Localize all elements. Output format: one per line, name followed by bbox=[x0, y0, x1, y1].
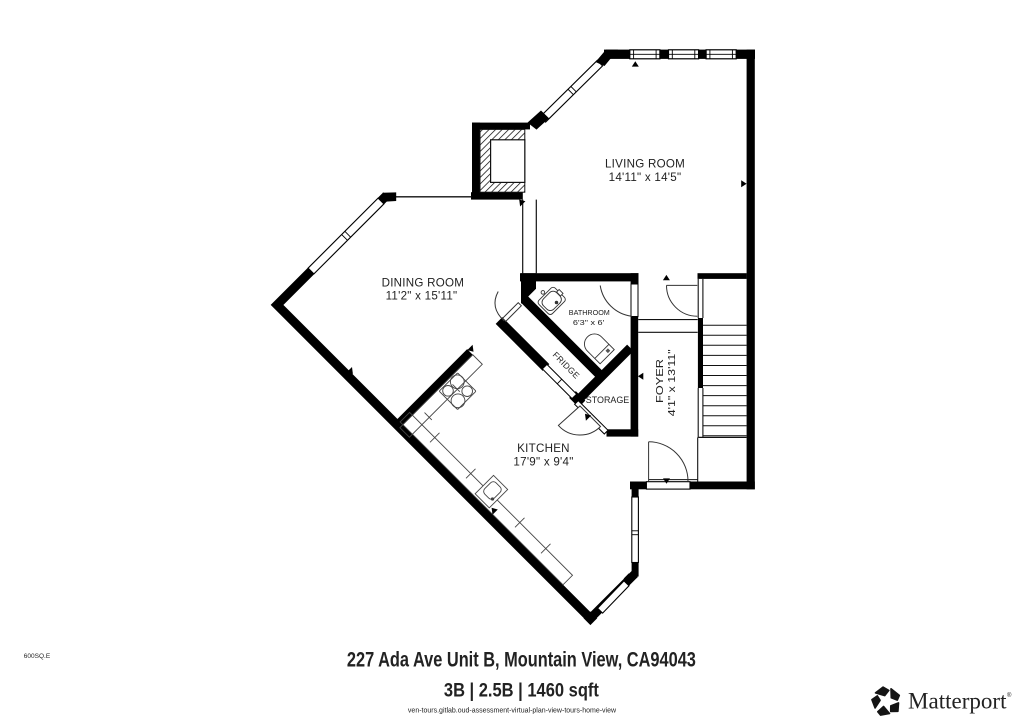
svg-text:KITCHEN: KITCHEN bbox=[517, 442, 570, 455]
svg-text:FOYER: FOYER bbox=[654, 358, 666, 403]
svg-text:LIVING ROOM: LIVING ROOM bbox=[605, 158, 685, 171]
svg-text:6'3" x 6': 6'3" x 6' bbox=[573, 318, 605, 327]
svg-text:Matterport: Matterport bbox=[908, 689, 1007, 714]
svg-text:®: ® bbox=[1007, 692, 1012, 699]
svg-text:11'2" x 15'11": 11'2" x 15'11" bbox=[386, 290, 458, 303]
svg-text:ven-tours.gitlab.oud-assessmen: ven-tours.gitlab.oud-assessment-virtual-… bbox=[408, 708, 617, 715]
svg-text:DINING ROOM: DINING ROOM bbox=[382, 276, 465, 289]
svg-text:BATHROOM: BATHROOM bbox=[569, 308, 610, 317]
svg-text:STORAGE: STORAGE bbox=[586, 395, 630, 406]
svg-text:14'11" x 14'5": 14'11" x 14'5" bbox=[609, 171, 682, 184]
svg-text:600SQ.E: 600SQ.E bbox=[24, 653, 51, 660]
svg-text:227 Ada Ave Unit B, Mountain V: 227 Ada Ave Unit B, Mountain View, CA940… bbox=[347, 649, 696, 672]
svg-text:3B | 2.5B | 1460 sqft: 3B | 2.5B | 1460 sqft bbox=[444, 681, 600, 702]
svg-text:4'1" x 13'11": 4'1" x 13'11" bbox=[667, 349, 678, 417]
svg-text:17'9" x 9'4": 17'9" x 9'4" bbox=[513, 456, 573, 469]
